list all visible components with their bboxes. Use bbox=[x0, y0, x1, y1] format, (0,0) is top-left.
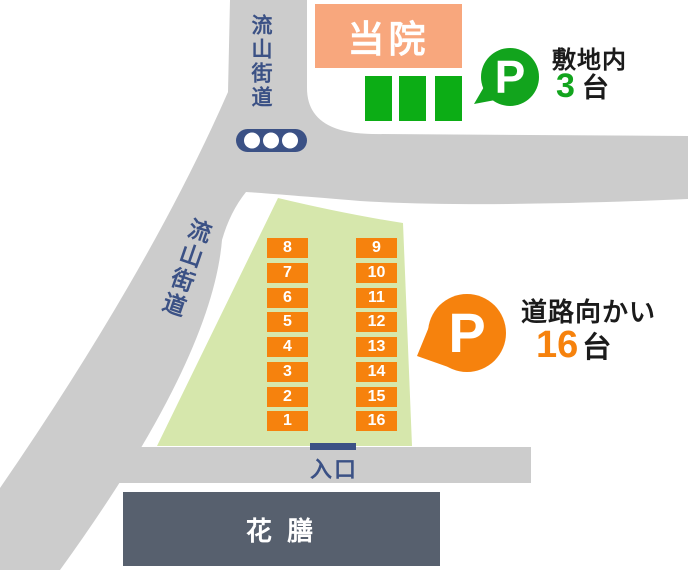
entrance-label: 入口 bbox=[306, 452, 362, 484]
bottom-road bbox=[40, 447, 531, 483]
onsite-p-letter: P bbox=[481, 51, 539, 103]
parking-spot-3: 3 bbox=[267, 362, 308, 382]
parking-spot-1: 1 bbox=[267, 411, 308, 431]
parking-spot-8: 8 bbox=[267, 238, 308, 258]
restaurant-label: 花 膳 bbox=[246, 511, 317, 548]
parking-spot-9: 9 bbox=[356, 238, 397, 258]
parking-map: 当院 流山街道 流山街道 P P 敷地内 3 台 道路向かい 16 台 8 7 … bbox=[0, 0, 688, 570]
offsite-count: 16 台 bbox=[536, 324, 611, 367]
parking-spot-6: 6 bbox=[267, 288, 308, 308]
road-name-top: 流山街道 bbox=[248, 14, 272, 110]
parking-spot-14: 14 bbox=[356, 362, 397, 382]
parking-spot-12: 12 bbox=[356, 312, 397, 332]
parking-spot-13: 13 bbox=[356, 337, 397, 357]
parking-spot-5: 5 bbox=[267, 312, 308, 332]
traffic-light-icon bbox=[236, 129, 307, 152]
parking-spot-10: 10 bbox=[356, 263, 397, 283]
onsite-count-number: 3 bbox=[556, 67, 575, 106]
clinic-label: 当院 bbox=[348, 9, 430, 63]
parking-spot-4: 4 bbox=[267, 337, 308, 357]
parking-spot-2: 2 bbox=[267, 387, 308, 407]
entrance-marker bbox=[310, 443, 356, 450]
onsite-count-unit: 台 bbox=[582, 66, 609, 105]
onsite-count: 3 台 bbox=[556, 66, 609, 106]
parking-spot-7: 7 bbox=[267, 263, 308, 283]
parking-spot-15: 15 bbox=[356, 387, 397, 407]
clinic-box: 当院 bbox=[315, 4, 462, 68]
offsite-count-number: 16 bbox=[536, 324, 578, 367]
restaurant-box: 花 膳 bbox=[123, 492, 440, 566]
offsite-p-letter: P bbox=[437, 304, 497, 362]
parking-spot-16: 16 bbox=[356, 411, 397, 431]
onsite-parking-spaces bbox=[365, 76, 462, 121]
parking-spot-11: 11 bbox=[356, 288, 397, 308]
offsite-count-unit: 台 bbox=[582, 324, 611, 366]
